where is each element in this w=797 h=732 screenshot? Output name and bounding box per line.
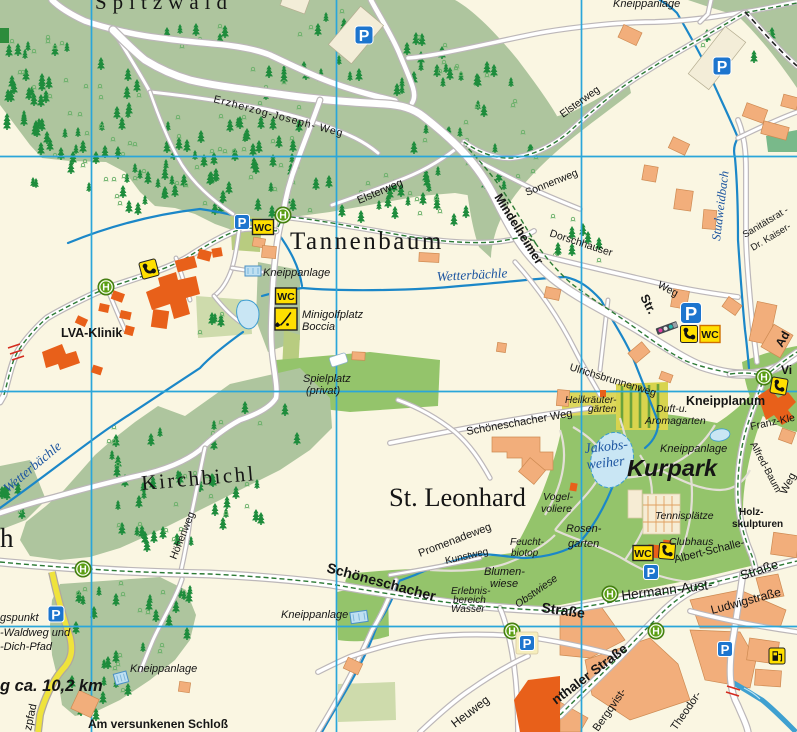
svg-text:Feucht-: Feucht-	[510, 537, 545, 548]
svg-text:Vi: Vi	[781, 363, 792, 377]
svg-text:Clubhaus: Clubhaus	[669, 536, 714, 548]
svg-text:Kneippanlage: Kneippanlage	[130, 663, 197, 675]
svg-text:WC: WC	[701, 329, 719, 341]
svg-text:Kneippanlage: Kneippanlage	[613, 0, 680, 10]
svg-text:P: P	[685, 303, 697, 324]
svg-text:garten: garten	[568, 538, 599, 550]
svg-text:Tennisplätze: Tennisplätze	[655, 510, 714, 522]
svg-text:Holz-: Holz-	[739, 507, 763, 518]
svg-text:P: P	[359, 28, 370, 45]
svg-text:P: P	[721, 642, 730, 657]
svg-text:Am versunkenen Schloß: Am versunkenen Schloß	[88, 717, 228, 731]
svg-text:gärten: gärten	[588, 404, 617, 415]
svg-text:Wasser: Wasser	[451, 604, 485, 615]
svg-text:Duft-u.: Duft-u.	[656, 403, 688, 415]
svg-text:P: P	[238, 215, 247, 230]
svg-text:St. Leonhard: St. Leonhard	[389, 482, 526, 512]
svg-text:-Waldweg und: -Waldweg und	[0, 627, 71, 639]
svg-text:(privat): (privat)	[306, 385, 341, 397]
svg-text:WC: WC	[277, 291, 295, 303]
svg-text:Kneippanlage: Kneippanlage	[660, 443, 727, 455]
svg-text:g ca. 10,2 km: g ca. 10,2 km	[0, 677, 103, 695]
svg-text:-Dich-Pfad: -Dich-Pfad	[0, 641, 53, 653]
svg-text:voliere: voliere	[541, 503, 572, 515]
svg-text:biotop: biotop	[511, 548, 539, 559]
svg-text:H: H	[652, 627, 660, 638]
svg-text:Kneippanlage: Kneippanlage	[281, 609, 348, 621]
svg-text:H: H	[508, 627, 516, 638]
svg-text:skulpturen: skulpturen	[732, 519, 783, 530]
svg-text:P: P	[647, 565, 656, 580]
svg-text:Rosen-: Rosen-	[566, 523, 602, 535]
svg-text:Kneippanlage: Kneippanlage	[263, 267, 330, 279]
svg-text:wiese: wiese	[490, 578, 518, 590]
svg-text:Tannenbaum: Tannenbaum	[290, 228, 444, 255]
svg-text:Aromagarten: Aromagarten	[644, 415, 706, 427]
svg-text:WC: WC	[634, 548, 652, 560]
svg-text:Spielplatz: Spielplatz	[303, 373, 351, 385]
svg-text:Blumen-: Blumen-	[484, 566, 525, 578]
svg-text:Minigolfplatz: Minigolfplatz	[302, 309, 364, 321]
svg-text:Kurpark: Kurpark	[627, 455, 719, 481]
svg-text:H: H	[279, 211, 287, 222]
svg-text:H: H	[79, 565, 87, 576]
svg-text:LVA-Klinik: LVA-Klinik	[61, 326, 122, 340]
svg-text:Spitzwald: Spitzwald	[95, 0, 233, 14]
svg-text:h: h	[0, 523, 14, 553]
svg-text:H: H	[102, 283, 110, 294]
svg-text:P: P	[717, 59, 728, 76]
svg-text:WC: WC	[254, 222, 272, 234]
svg-text:gspunkt: gspunkt	[0, 612, 39, 624]
svg-text:H: H	[606, 590, 614, 601]
svg-text:P: P	[523, 636, 532, 651]
svg-text:Boccia: Boccia	[302, 321, 335, 333]
svg-text:H: H	[760, 373, 768, 384]
svg-text:P: P	[51, 606, 60, 622]
svg-text:Vogel-: Vogel-	[543, 491, 573, 503]
svg-text:Kneipplanum: Kneipplanum	[686, 394, 765, 408]
